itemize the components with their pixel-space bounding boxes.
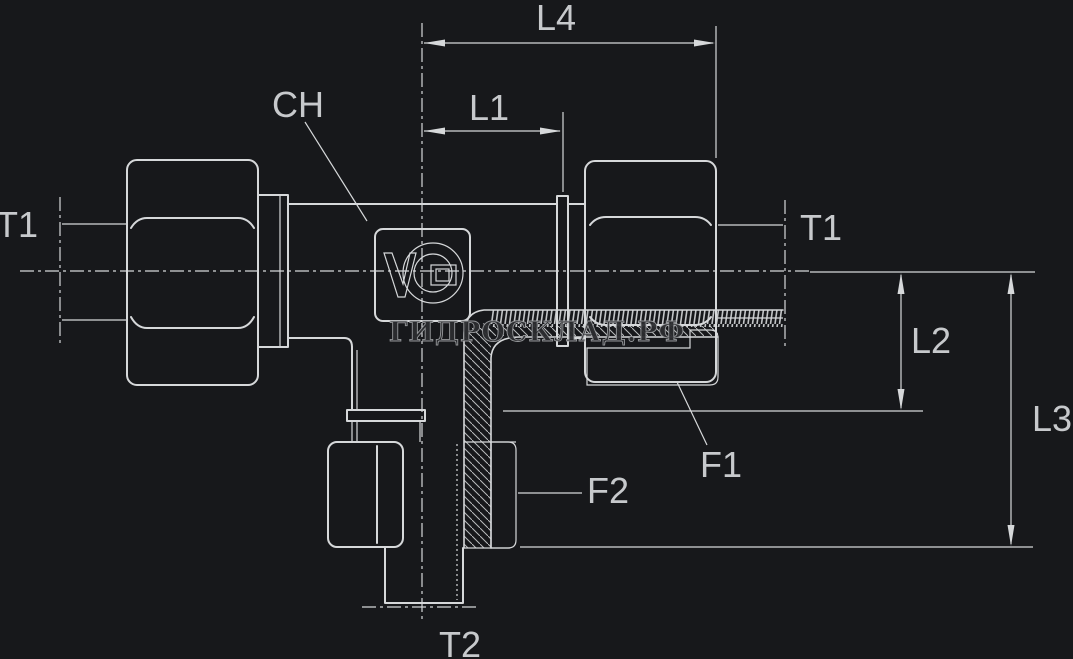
label-t2: T2 [439,624,481,659]
branch-tube-end [385,547,463,603]
brand-logo [384,243,463,303]
l2-arrow-down-icon [898,389,905,410]
l1-arrow-right-icon [540,128,561,135]
label-f1: F1 [677,382,742,485]
t1-right-label: T1 [800,207,842,248]
f1-label: F1 [700,444,742,485]
branch-tube-outline [385,547,463,603]
label-ch: CH [272,84,367,221]
logo-v-icon [384,253,416,297]
branch-hex-nut [328,442,403,547]
watermark: ГИДРОСКЛАД.РФ [389,317,685,348]
left-hex-facet-top [131,218,254,228]
l2-arrow-up-icon [898,273,905,294]
drawing-canvas: L4 L1 L2 L3 CH T1 T1 F1 F2 [0,0,1073,659]
logo-outer-circle-icon [403,243,463,303]
label-t1-left: T1 [0,204,127,320]
l4-label: L4 [536,0,576,38]
l4-arrow-left-icon [424,40,445,47]
t2-label: T2 [439,624,481,659]
neck-lower-lines [352,421,420,442]
body-bottom-line [288,338,352,347]
branch-washer [347,410,425,421]
l1-arrow-left-icon [424,128,445,135]
dimension-l4: L4 [424,0,716,158]
f2-nut-section [491,442,516,548]
dimension-l1: L1 [424,87,563,192]
branch-neck [347,347,425,442]
l3-label: L3 [1032,398,1072,439]
right-hex-facet-top [590,217,711,225]
left-hex-nut [127,160,258,385]
t1-left-label: T1 [0,204,38,245]
branch-wall-hatch-vertical [464,322,491,548]
outer-wall-line [491,337,718,548]
left-hex-outline [127,160,258,385]
l2-label: L2 [911,320,951,361]
l3-arrow-down-icon [1008,525,1015,546]
f1-leader-line [677,382,707,445]
label-f2: F2 [518,470,629,511]
l3-arrow-up-icon [1008,273,1015,294]
ch-label: CH [272,84,324,125]
l1-label: L1 [469,87,509,128]
branch-hex-outline [328,442,403,547]
l4-arrow-right-icon [694,40,715,47]
tee-fitting-drawing: L4 L1 L2 L3 CH T1 T1 F1 F2 [0,0,1073,659]
left-hex-facet-bottom [131,317,254,328]
ch-leader-line [305,122,367,221]
label-t1-right: T1 [800,207,842,248]
f2-label: F2 [587,470,629,511]
logo-inner-circle-icon [414,254,452,292]
